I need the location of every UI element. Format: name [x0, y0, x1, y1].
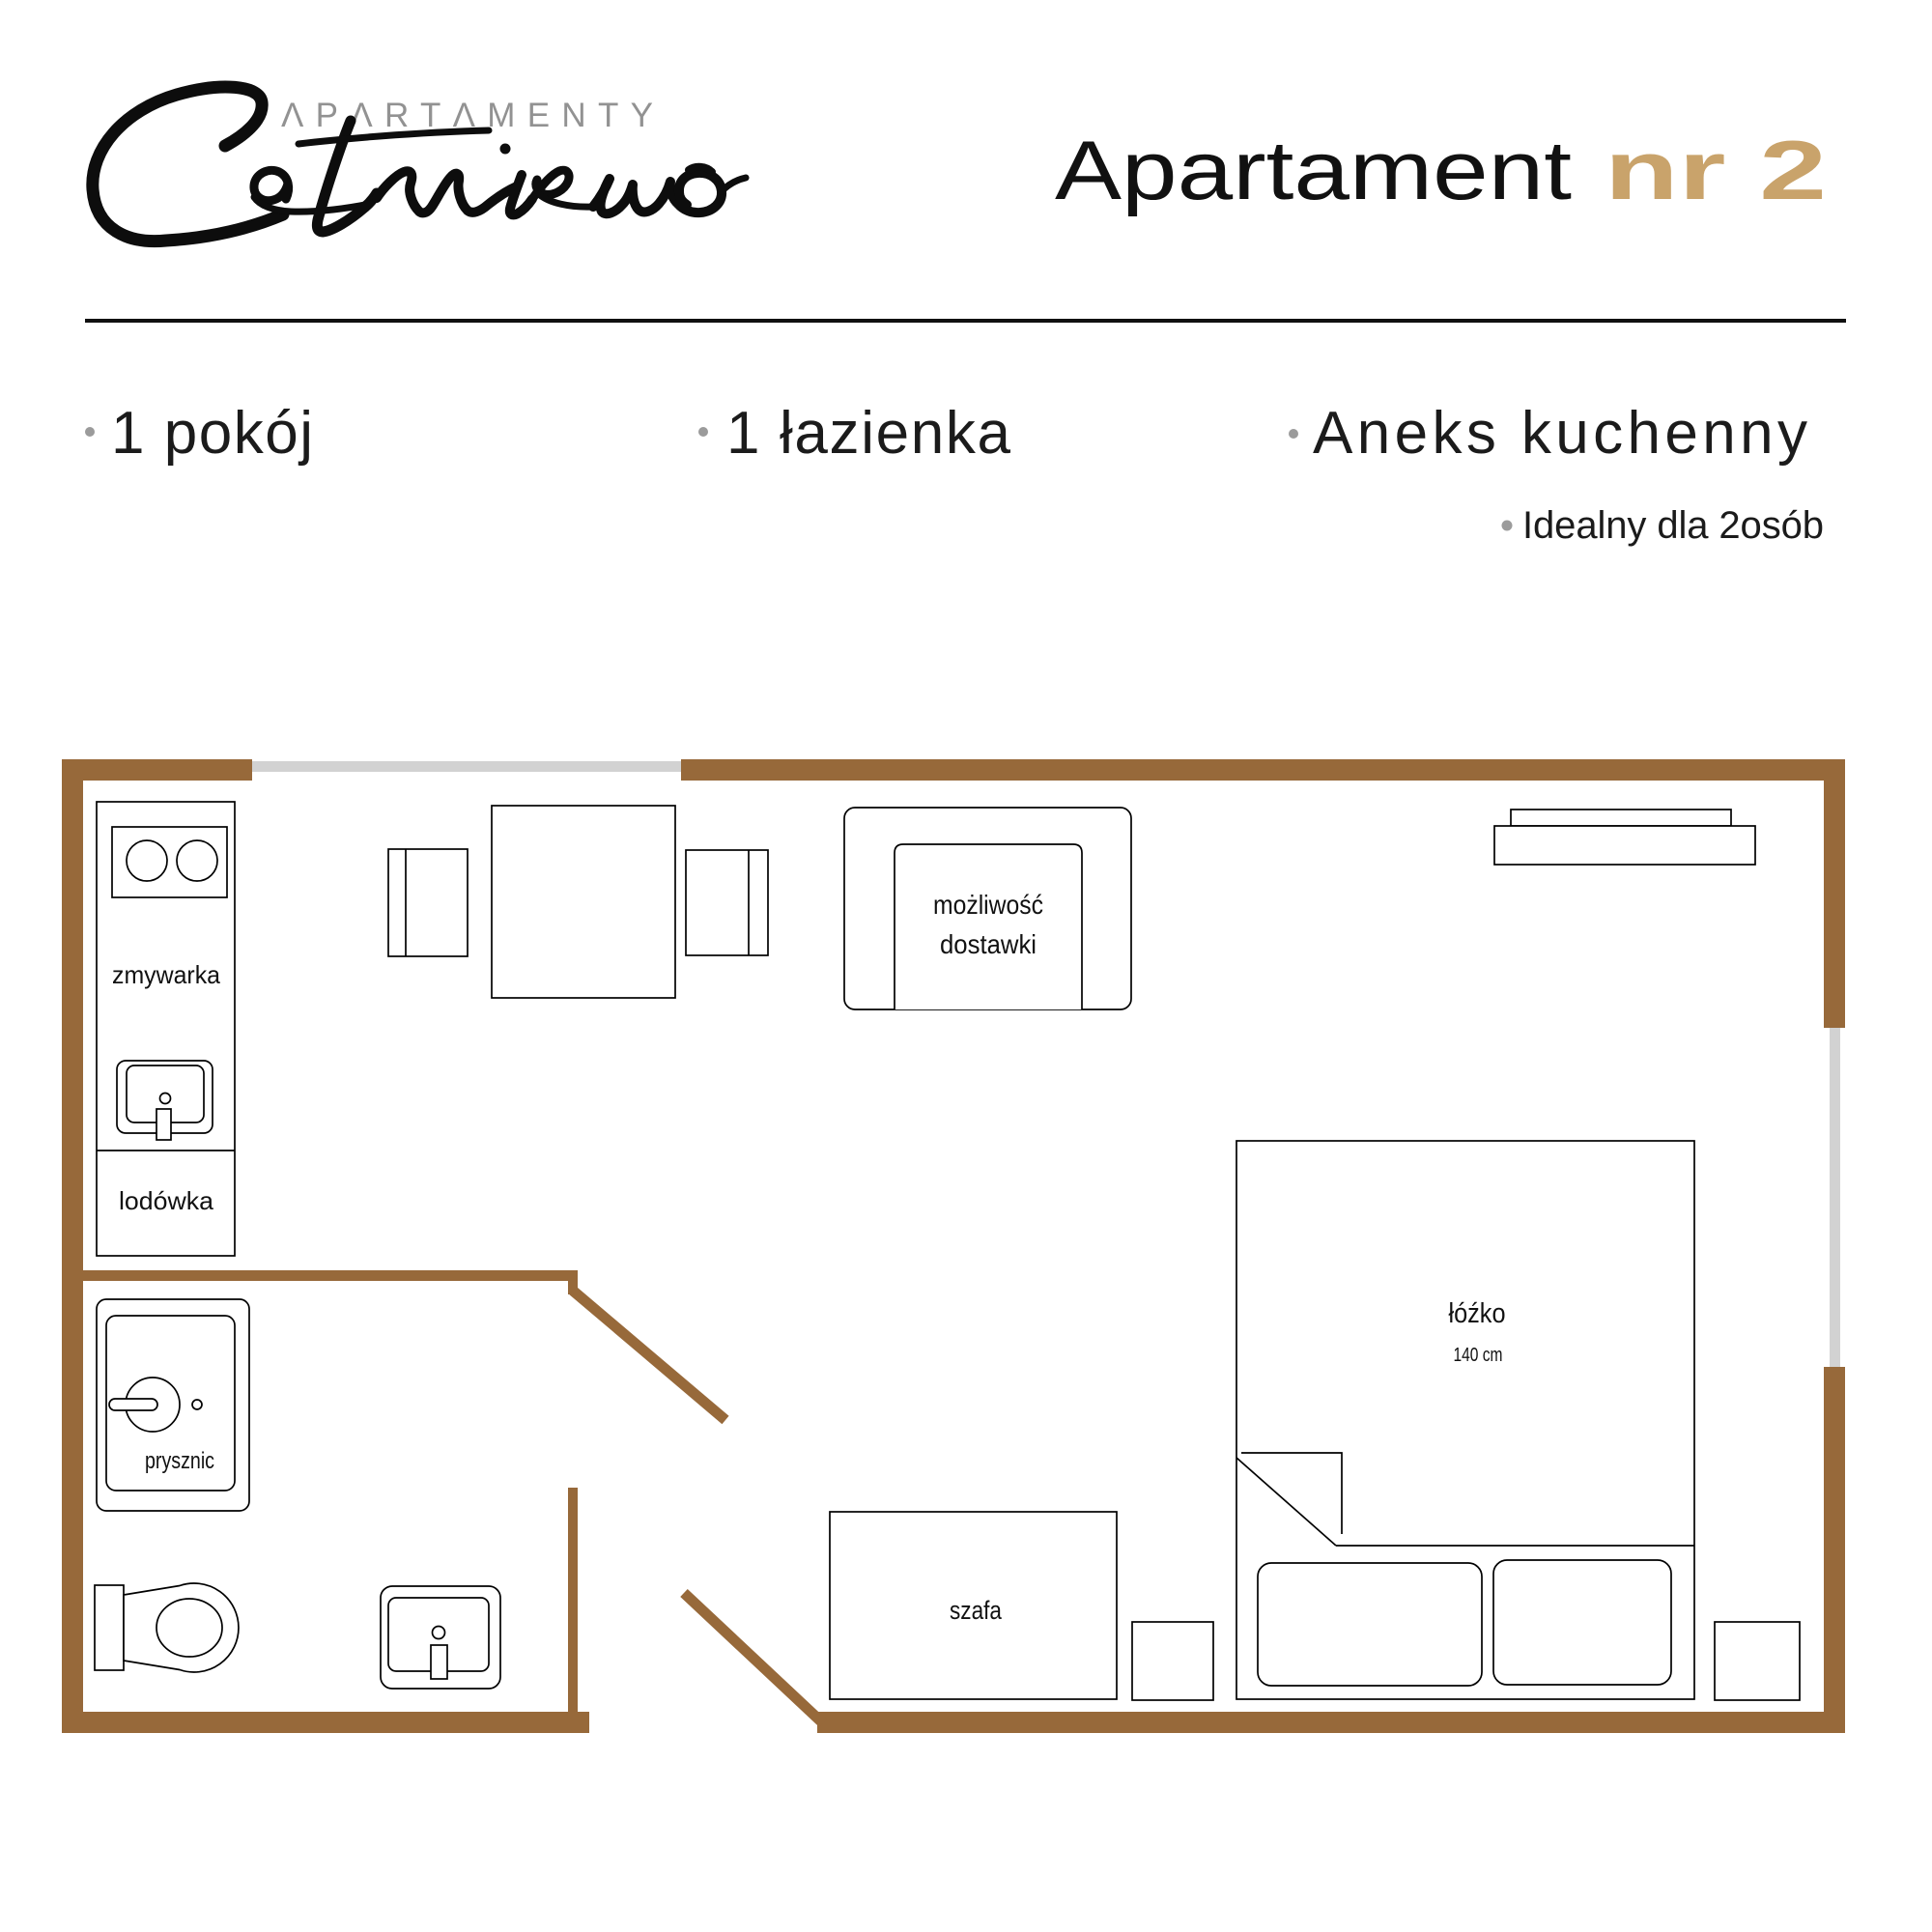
svg-text:szafa: szafa [950, 1596, 1003, 1625]
svg-text:prysznic: prysznic [145, 1448, 214, 1474]
svg-text:łóźko: łóźko [1449, 1298, 1506, 1329]
svg-text:140 cm: 140 cm [1454, 1345, 1503, 1366]
svg-text:dostawki: dostawki [940, 929, 1037, 959]
svg-text:lodówka: lodówka [119, 1186, 214, 1215]
svg-text:1 łazienka: 1 łazienka [726, 400, 1011, 467]
svg-text:Aneks kuchenny: Aneks kuchenny [1313, 400, 1807, 467]
svg-text:możliwość: możliwość [933, 890, 1043, 920]
svg-text:Idealny dla 2osób: Idealny dla 2osób [1522, 504, 1824, 547]
svg-text:1 pokój: 1 pokój [111, 400, 313, 467]
svg-text:nr 2: nr 2 [1605, 125, 1827, 217]
svg-text:zmywarka: zmywarka [112, 960, 221, 989]
svg-text:Apartament: Apartament [1055, 125, 1572, 217]
